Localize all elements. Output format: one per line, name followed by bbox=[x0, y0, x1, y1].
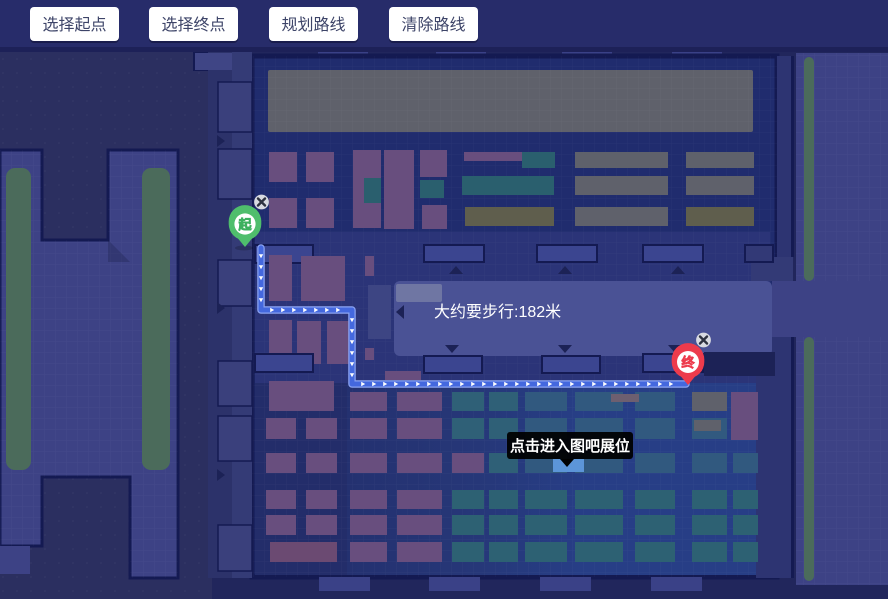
svg-text:大约要步行:182米: 大约要步行:182米 bbox=[434, 303, 561, 321]
svg-text:选择起点: 选择起点 bbox=[42, 16, 106, 34]
svg-text:起: 起 bbox=[237, 217, 252, 232]
svg-text:终: 终 bbox=[681, 355, 695, 370]
svg-text:清除路线: 清除路线 bbox=[401, 16, 465, 34]
svg-text:点击进入图吧展位: 点击进入图吧展位 bbox=[510, 437, 630, 455]
svg-text:选择终点: 选择终点 bbox=[161, 16, 225, 34]
svg-text:规划路线: 规划路线 bbox=[281, 16, 345, 34]
